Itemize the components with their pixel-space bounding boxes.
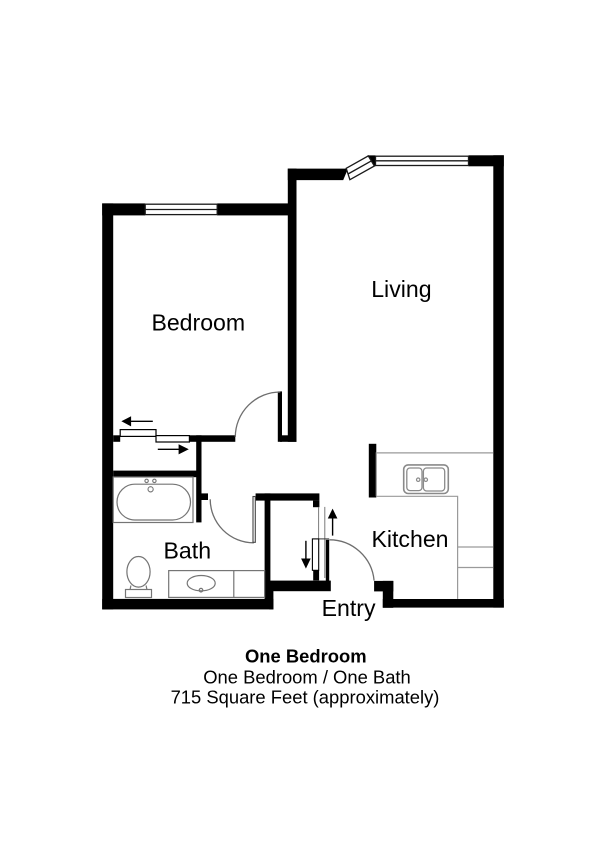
svg-text:Living: Living	[371, 276, 431, 302]
svg-text:One Bedroom: One Bedroom	[245, 646, 367, 667]
svg-text:Entry: Entry	[322, 595, 376, 621]
svg-text:One Bedroom / One Bath: One Bedroom / One Bath	[203, 667, 411, 688]
svg-text:Bedroom: Bedroom	[151, 310, 245, 336]
svg-text:715 Square Feet (approximately: 715 Square Feet (approximately)	[171, 687, 440, 708]
svg-text:Bath: Bath	[164, 538, 212, 564]
svg-text:Kitchen: Kitchen	[371, 526, 448, 552]
